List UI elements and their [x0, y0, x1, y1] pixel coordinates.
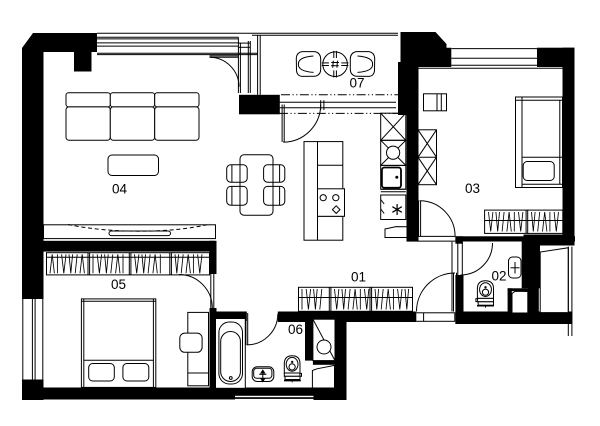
svg-text:04: 04	[112, 182, 128, 197]
svg-text:06: 06	[288, 322, 303, 337]
svg-text:05: 05	[111, 277, 126, 292]
svg-text:03: 03	[465, 181, 480, 196]
svg-text:02: 02	[492, 269, 507, 284]
svg-text:07: 07	[350, 76, 365, 91]
svg-text:01: 01	[351, 270, 366, 285]
